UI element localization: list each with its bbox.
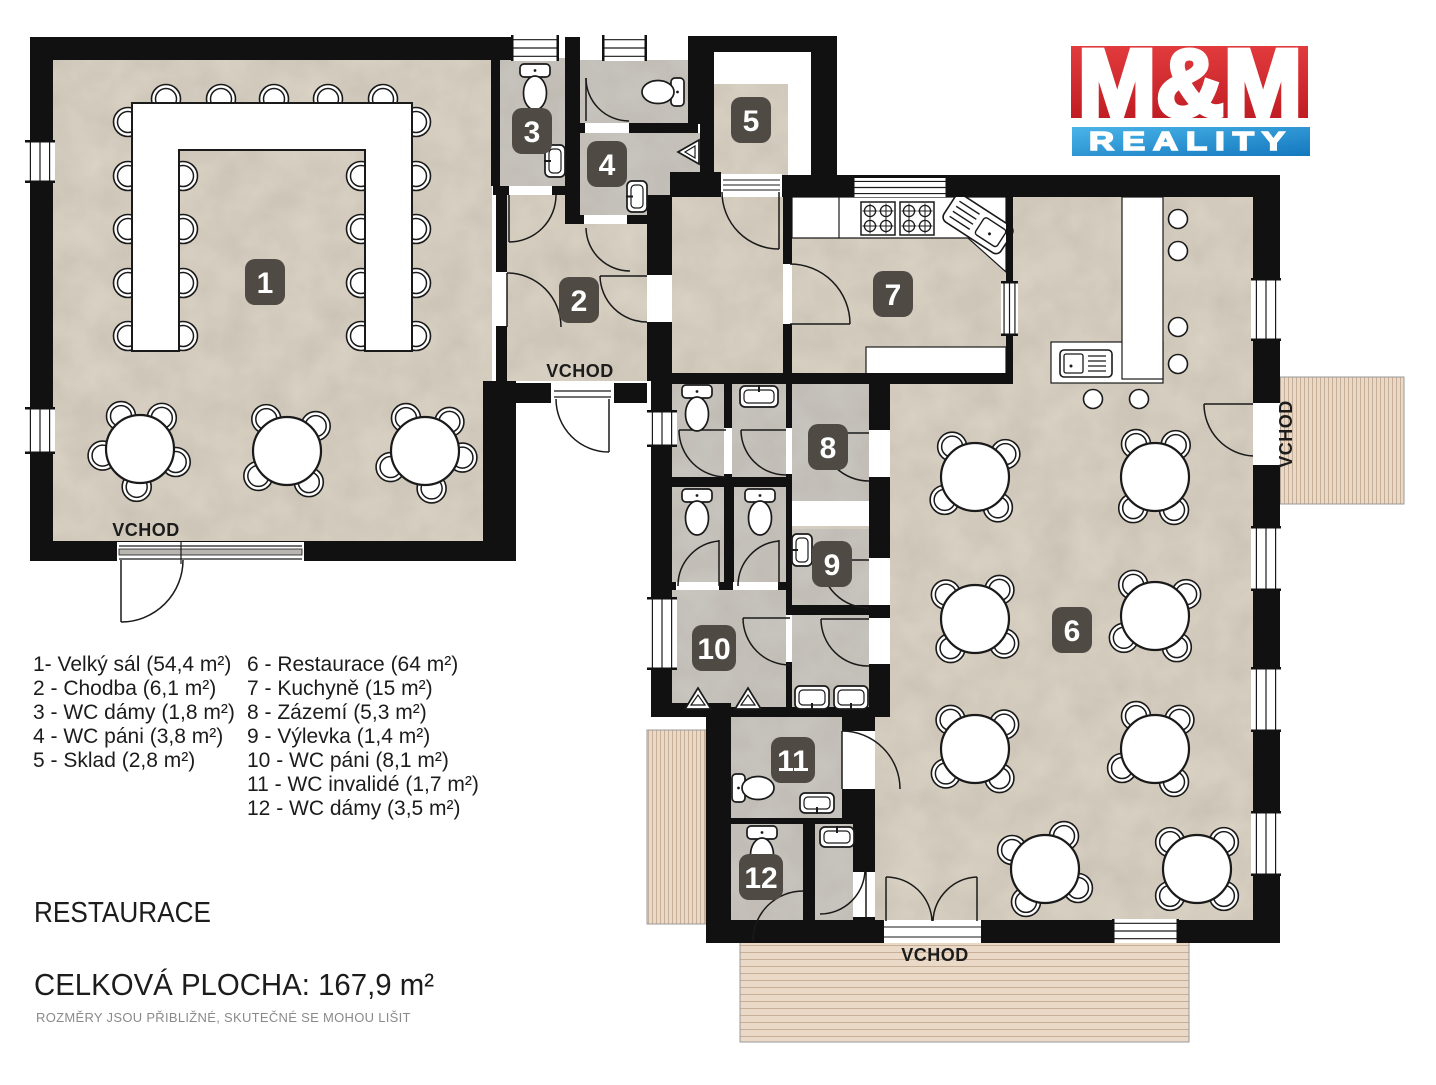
svg-text:3: 3: [524, 116, 541, 149]
svg-text:VCHOD: VCHOD: [901, 945, 969, 965]
svg-text:VCHOD: VCHOD: [1276, 400, 1296, 468]
svg-text:ROZMĚRY JSOU PŘIBLIŽNÉ, SKUTEČ: ROZMĚRY JSOU PŘIBLIŽNÉ, SKUTEČNÉ SE MOHO…: [36, 1010, 411, 1025]
svg-text:1- Velký sál (54,4 m²): 1- Velký sál (54,4 m²): [33, 653, 231, 676]
svg-text:5 - Sklad (2,8 m²): 5 - Sklad (2,8 m²): [33, 749, 195, 772]
svg-text:6: 6: [1064, 615, 1081, 648]
svg-text:VCHOD: VCHOD: [546, 361, 614, 381]
svg-text:10 - WC páni (8,1 m²): 10 - WC páni (8,1 m²): [247, 749, 449, 772]
svg-text:10: 10: [697, 633, 730, 666]
svg-text:8: 8: [820, 432, 837, 465]
svg-text:11: 11: [777, 745, 809, 778]
svg-text:VCHOD: VCHOD: [112, 520, 180, 540]
svg-text:RESTAURACE: RESTAURACE: [34, 897, 211, 929]
svg-text:7: 7: [885, 279, 902, 312]
svg-text:4 - WC páni (3,8 m²): 4 - WC páni (3,8 m²): [33, 725, 223, 748]
svg-text:12 - WC dámy (3,5 m²): 12 - WC dámy (3,5 m²): [247, 797, 461, 820]
svg-text:9: 9: [824, 549, 841, 582]
svg-text:REALITY: REALITY: [1089, 126, 1293, 156]
svg-text:9 - Výlevka (1,4 m²): 9 - Výlevka (1,4 m²): [247, 725, 430, 748]
svg-text:11 - WC invalidé (1,7 m²): 11 - WC invalidé (1,7 m²): [247, 773, 479, 796]
svg-text:M&M: M&M: [1078, 30, 1302, 137]
svg-text:2 - Chodba (6,1 m²): 2 - Chodba (6,1 m²): [33, 677, 216, 700]
svg-text:12: 12: [744, 862, 777, 895]
svg-text:7 - Kuchyně (15 m²): 7 - Kuchyně (15 m²): [247, 677, 433, 700]
svg-text:1: 1: [257, 267, 274, 300]
svg-text:6 - Restaurace (64 m²): 6 - Restaurace (64 m²): [247, 653, 458, 676]
svg-text:8 - Zázemí (5,3 m²): 8 - Zázemí (5,3 m²): [247, 701, 427, 724]
svg-text:2: 2: [571, 285, 588, 318]
svg-text:CELKOVÁ PLOCHA: 167,9 m²: CELKOVÁ PLOCHA: 167,9 m²: [34, 967, 434, 1002]
svg-text:4: 4: [599, 149, 616, 182]
svg-text:3 - WC dámy (1,8 m²): 3 - WC dámy (1,8 m²): [33, 701, 235, 724]
svg-text:5: 5: [743, 105, 760, 138]
